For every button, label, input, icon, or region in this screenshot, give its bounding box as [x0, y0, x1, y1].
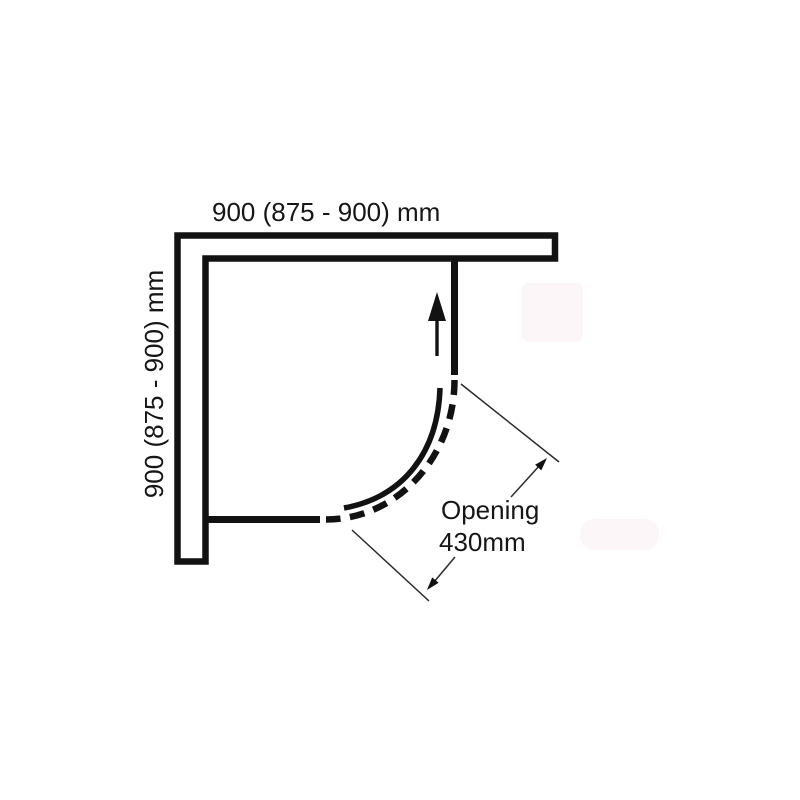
arrow-up-right-icon [511, 458, 547, 497]
diagram-drawing: 900 (875 - 900) mm 900 (875 - 900) mm Op… [0, 0, 800, 800]
shower-enclosure-diagram: 900 (875 - 900) mm 900 (875 - 900) mm Op… [0, 0, 800, 800]
curved-door-panel [344, 388, 440, 508]
opening-label: Opening [441, 495, 539, 525]
watermark-smudge [522, 283, 583, 342]
top-dimension-label: 900 (875 - 900) mm [212, 197, 440, 227]
opening-value-label: 430mm [439, 527, 526, 557]
lower-extension-line [352, 530, 429, 601]
upper-extension-line [461, 384, 559, 462]
up-arrow-icon [428, 292, 446, 356]
door-track-dashed-arc [326, 380, 455, 520]
left-dimension-label: 900 (875 - 900) mm [139, 270, 169, 498]
watermark-smudge [580, 519, 659, 550]
arrow-down-left-icon [427, 557, 455, 590]
